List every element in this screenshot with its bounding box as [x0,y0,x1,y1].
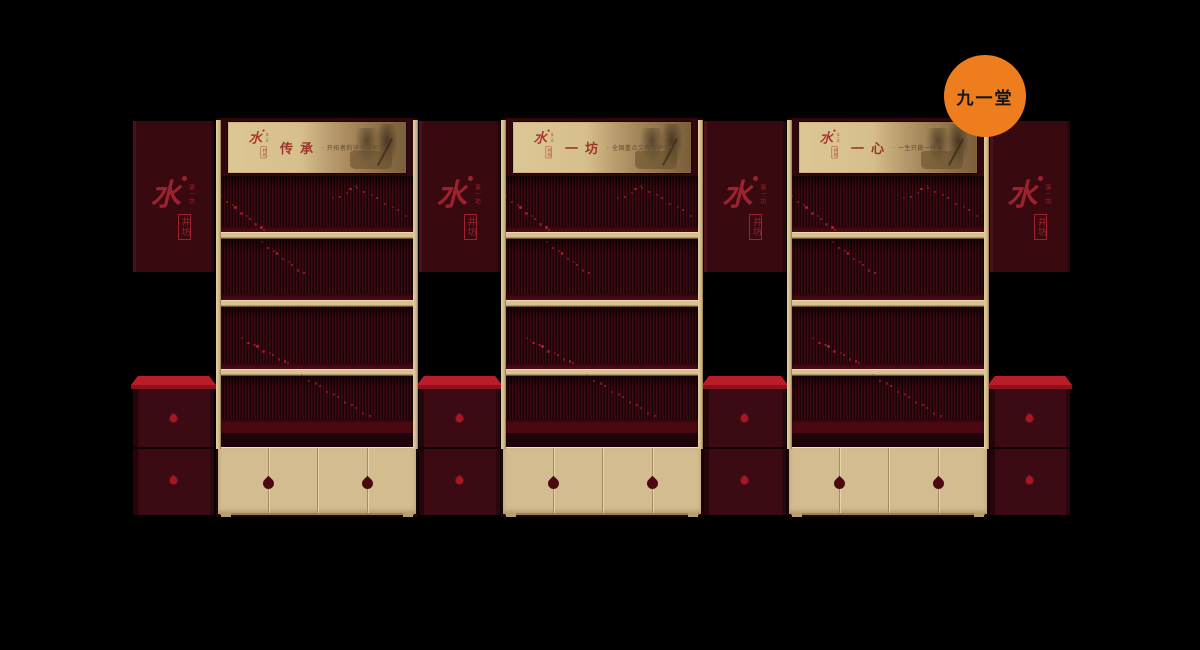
red-counter [702,376,788,389]
shelf-base-strip [792,419,984,433]
banner-title: 一坊 [565,138,605,157]
base-cupboard [789,447,987,514]
shelf-board [221,232,413,239]
seal-icon [753,176,758,181]
shelf-section [221,307,413,369]
shelf-board [506,232,698,239]
red-counter [131,376,216,389]
shelf-section [506,307,698,369]
base-lip [791,513,985,515]
logo-main-char: 水 [248,132,262,146]
seal-icon [182,176,187,181]
logo-side-text: 第一坊 [759,184,765,205]
seal-icon [262,129,264,131]
banner-2: 第一坊 水 井坊 一坊 · 全国重点文物保护单位 [513,122,691,173]
door-handle [931,476,947,492]
banner-seal: 第一坊 水 井坊 [819,129,841,165]
shelf-section [506,176,698,232]
door-handle [360,476,376,492]
logo-panel: 第一坊 水 井坊 [419,121,500,272]
drawer-handle [1025,476,1035,486]
cabinet-foot [403,513,413,517]
frame-side [216,120,221,449]
door-seam [602,448,603,514]
counter-top [702,376,788,385]
cabinet-foot [792,513,802,517]
cabinet-foot [506,513,516,517]
display-cabinet-2: 第一坊 水 井坊 一坊 · 全国重点文物保护单位 [501,118,703,517]
banner-subtitle: · 全国重点文物保护单位 [607,143,677,152]
drawer-unit [704,389,786,515]
brand-logo: 第一坊 水 井坊 [436,175,484,255]
brand-logo: 第一坊 水 井坊 [721,175,769,255]
shelf-board [792,300,984,307]
frame-side [413,120,418,449]
shelf-section [506,239,698,300]
side-unit-left: 第一坊 水 井坊 [133,118,214,517]
logo-main-char: 水 [1007,181,1037,211]
drawer-handle [1025,414,1035,424]
cabinet-foot [974,513,984,517]
banner-seal: 第一坊 水 井坊 [533,129,555,165]
frame-side [501,120,506,449]
counter-top [131,376,216,385]
door-handle [546,476,562,492]
shelf-board [506,369,698,376]
shelf-section [506,376,698,433]
drawer-unit [419,389,500,515]
brand-logo: 第一坊 水 井坊 [150,175,198,255]
shelf-section [792,239,984,300]
divider-unit-2: 第一坊 水 井坊 [704,118,786,517]
shelf-section [221,176,413,232]
display-cabinet-3: 第一坊 水 井坊 一心 · 一生只做一件事 [787,118,989,517]
shelf-board [792,369,984,376]
logo-side-text: 第一坊 [1044,184,1050,205]
banner-1: 第一坊 水 井坊 传承 · 开拓者的坚守与担当 [228,122,406,173]
shelf-section [792,307,984,369]
logo-boxed-chars: 井坊 [546,147,552,159]
drawer-handle [740,476,750,486]
seal-icon [468,176,473,181]
logo-main-char: 水 [722,181,752,211]
logo-boxed-chars: 井坊 [178,214,191,240]
seal-icon [833,129,835,131]
shelf-board [792,232,984,239]
drawer-divider [133,447,214,449]
shelf-section [221,239,413,300]
logo-side-text: 第一坊 [836,133,839,142]
display-cabinet-1: 第一坊 水 井坊 传承 · 开拓者的坚守与担当 [216,118,418,517]
frame-side [698,120,703,449]
logo-boxed-chars: 井坊 [464,214,477,240]
banner-seal: 第一坊 水 井坊 [248,129,270,165]
drawer-divider [704,447,786,449]
logo-main-char: 水 [819,132,833,146]
base-cupboard [218,447,416,514]
door-handle [645,476,661,492]
frame-side [984,120,989,449]
logo-boxed-chars: 井坊 [1034,214,1047,240]
banner-subtitle: · 开拓者的坚守与担当 [322,143,385,152]
shelf-section [792,176,984,232]
logo-panel: 第一坊 水 井坊 [704,121,786,272]
drawer-handle [454,414,464,424]
banner-title: 传承 [280,138,320,157]
logo-side-text: 第一坊 [265,133,268,142]
base-cupboard [503,447,701,514]
door-handle [261,476,277,492]
frame-side [787,120,792,449]
banner-subtitle: · 一生只做一件事 [893,143,943,152]
drawer-divider [990,447,1070,449]
shelf-board [506,300,698,307]
banner-title: 一心 [851,138,891,157]
counter-top [988,376,1072,385]
logo-side-text: 第一坊 [474,184,480,205]
cabinet-foot [221,513,231,517]
seal-icon [1038,176,1043,181]
drawer-handle [168,414,178,424]
cabinet-foot [688,513,698,517]
badge-label: 九一堂 [957,84,1014,109]
logo-main-char: 水 [151,181,181,211]
shelf-section [792,376,984,433]
base-lip [220,513,414,515]
door-handle [832,476,848,492]
drawer-handle [168,476,178,486]
banner-3: 第一坊 水 井坊 一心 · 一生只做一件事 [799,122,977,173]
logo-main-char: 水 [437,181,467,211]
divider-unit-1: 第一坊 水 井坊 [419,118,500,517]
side-unit-right: 第一坊 水 井坊 [990,118,1070,517]
shelf-base-strip [506,419,698,433]
seal-icon [547,129,549,131]
drawer-unit [133,389,214,515]
scene: 九一堂 第一坊 水 井坊 第一坊 水 井坊 [0,0,1200,650]
door-seam [317,448,318,514]
logo-main-char: 水 [533,132,547,146]
shelf-board [221,369,413,376]
shelf-section [221,376,413,433]
drawer-unit [990,389,1070,515]
logo-boxed-chars: 井坊 [749,214,762,240]
drawer-divider [419,447,500,449]
red-counter [988,376,1072,389]
base-lip [505,513,699,515]
logo-panel: 第一坊 水 井坊 [990,121,1070,272]
drawer-handle [454,476,464,486]
door-seam [888,448,889,514]
brand-logo: 第一坊 水 井坊 [1006,175,1054,255]
counter-top [417,376,502,385]
logo-boxed-chars: 井坊 [832,147,838,159]
shelf-base-strip [221,419,413,433]
shelf-board [221,300,413,307]
brand-badge: 九一堂 [944,55,1026,137]
logo-panel: 第一坊 水 井坊 [133,121,214,272]
drawer-handle [740,414,750,424]
red-counter [417,376,502,389]
logo-boxed-chars: 井坊 [261,147,267,159]
logo-side-text: 第一坊 [550,133,553,142]
logo-side-text: 第一坊 [188,184,194,205]
